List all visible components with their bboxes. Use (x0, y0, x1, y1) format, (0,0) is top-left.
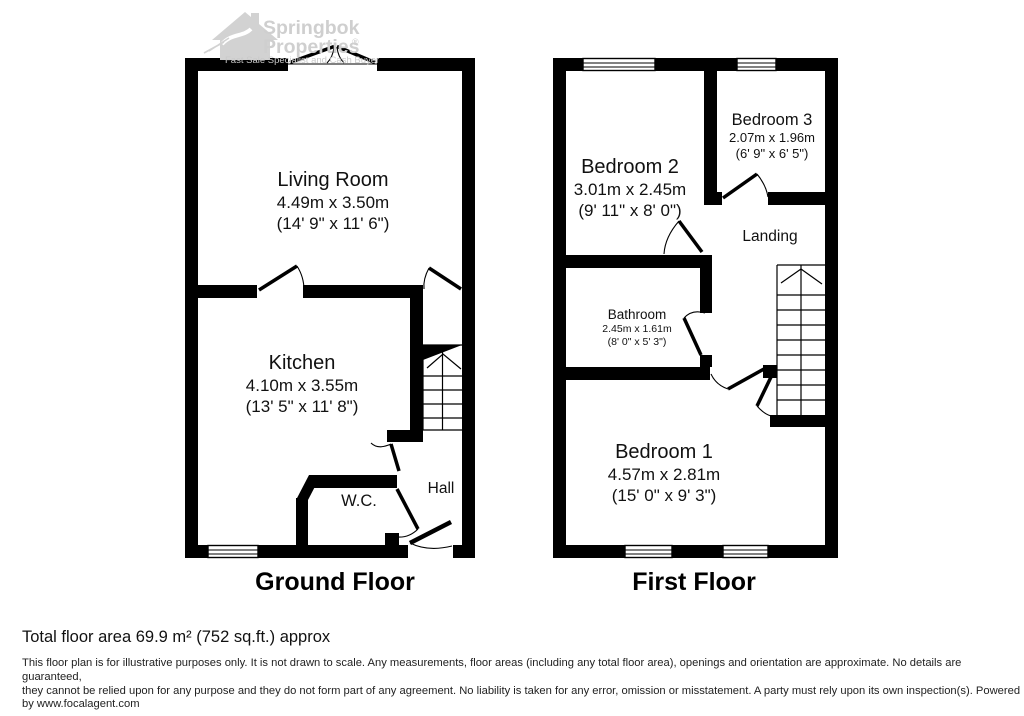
bedroom1-label: Bedroom 1 4.57m x 2.81m (15' 0" x 9' 3") (608, 440, 720, 506)
room-name: Bedroom 3 (729, 110, 815, 130)
disclaimer-text: This floor plan is for illustrative purp… (22, 657, 1024, 712)
room-name: Living Room (277, 168, 390, 192)
disclaimer-line: by www.focalagent.com (22, 698, 1024, 712)
gf-stairs-icon (423, 345, 462, 430)
gf-window-icon (208, 546, 258, 558)
ff-bedroom3-door-icon (723, 174, 768, 198)
room-dims-metric: 2.07m x 1.96m (729, 130, 815, 146)
total-floor-area-text: Total floor area 69.9 m² (752 sq.ft.) ap… (22, 628, 330, 647)
floor-plan-canvas: Springbok Properties ® Fast Sale Special… (0, 0, 1024, 716)
room-dims-metric: 2.45m x 1.61m (602, 323, 671, 336)
disclaimer-line: This floor plan is for illustrative purp… (22, 657, 1024, 685)
room-dims-imperial: (13' 5" x 11' 8") (246, 396, 359, 417)
watermark-reg-mark: ® (352, 37, 359, 47)
gf-kitchen-hall-door-icon (371, 443, 399, 471)
brand-watermark: Springbok Properties ® Fast Sale Special… (204, 12, 379, 66)
bedroom2-label: Bedroom 2 3.01m x 2.45m (9' 11" x 8' 0") (574, 155, 686, 221)
ff-bedroom2-door-icon (664, 221, 702, 254)
bedroom3-label: Bedroom 3 2.07m x 1.96m (6' 9" x 6' 5") (729, 110, 815, 162)
room-dims-imperial: (8' 0" x 5' 3") (602, 336, 671, 349)
watermark-tagline: Fast Sale Specialist and Cash Buyer (225, 55, 379, 66)
ff-bathroom-door-icon (684, 312, 705, 355)
room-dims-imperial: (15' 0" x 9' 3") (608, 485, 720, 506)
first-floor-title: First Floor (632, 568, 756, 597)
gf-wc-door-icon (397, 489, 418, 537)
kitchen-label: Kitchen 4.10m x 3.55m (13' 5" x 11' 8") (246, 351, 359, 417)
gf-living-hall-door-icon (424, 268, 461, 289)
room-dims-metric: 4.10m x 3.55m (246, 375, 359, 396)
room-dims-imperial: (9' 11" x 8' 0") (574, 200, 686, 221)
floor-plan-drawing: Springbok Properties ® Fast Sale Special… (0, 0, 1024, 716)
room-name: Bedroom 2 (574, 155, 686, 179)
room-name: Kitchen (246, 351, 359, 375)
ground-floor-title: Ground Floor (255, 568, 415, 597)
disclaimer-line: they cannot be relied upon for any purpo… (22, 685, 1024, 699)
ff-stairs-icon (777, 265, 825, 415)
ff-bedroom1-door-icon (711, 369, 771, 416)
room-name: Bedroom 1 (608, 440, 720, 464)
living-room-label: Living Room 4.49m x 3.50m (14' 9" x 11' … (277, 168, 390, 234)
wc-label: W.C. (341, 492, 377, 511)
hall-label: Hall (428, 480, 455, 498)
room-dims-imperial: (14' 9" x 11' 6") (277, 213, 390, 234)
room-dims-metric: 4.57m x 2.81m (608, 464, 720, 485)
gf-kitchen-door-icon (259, 266, 304, 290)
bathroom-label: Bathroom 2.45m x 1.61m (8' 0" x 5' 3") (602, 306, 671, 348)
room-dims-metric: 3.01m x 2.45m (574, 179, 686, 200)
landing-label: Landing (742, 228, 797, 246)
room-dims-metric: 4.49m x 3.50m (277, 192, 390, 213)
room-name: Bathroom (602, 306, 671, 323)
room-dims-imperial: (6' 9" x 6' 5") (729, 146, 815, 162)
